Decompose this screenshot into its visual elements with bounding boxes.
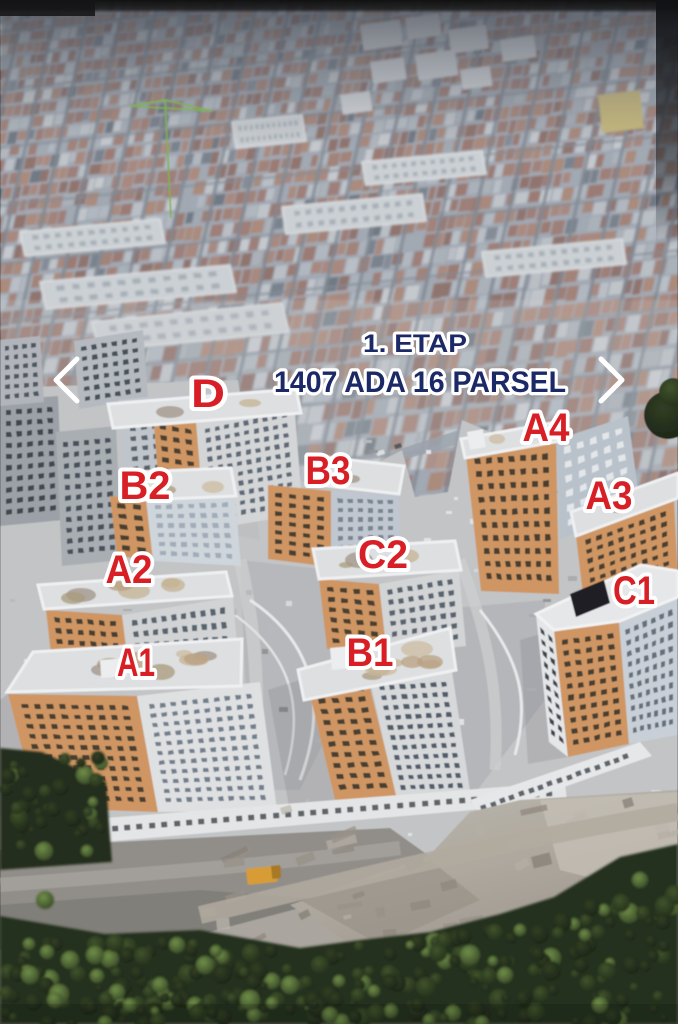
svg-text:B3: B3: [306, 449, 351, 493]
svg-text:C2: C2: [358, 533, 408, 577]
svg-text:A1: A1: [117, 641, 155, 685]
svg-text:D: D: [191, 372, 225, 416]
svg-text:B2: B2: [120, 464, 171, 508]
svg-text:A4: A4: [523, 406, 571, 450]
svg-text:A3: A3: [586, 474, 633, 518]
svg-text:A2: A2: [106, 548, 153, 592]
svg-text:1. ETAP: 1. ETAP: [363, 330, 467, 358]
svg-text:B1: B1: [347, 631, 394, 675]
svg-text:1407 ADA 16 PARSEL: 1407 ADA 16 PARSEL: [274, 366, 566, 399]
svg-text:C1: C1: [613, 569, 655, 613]
